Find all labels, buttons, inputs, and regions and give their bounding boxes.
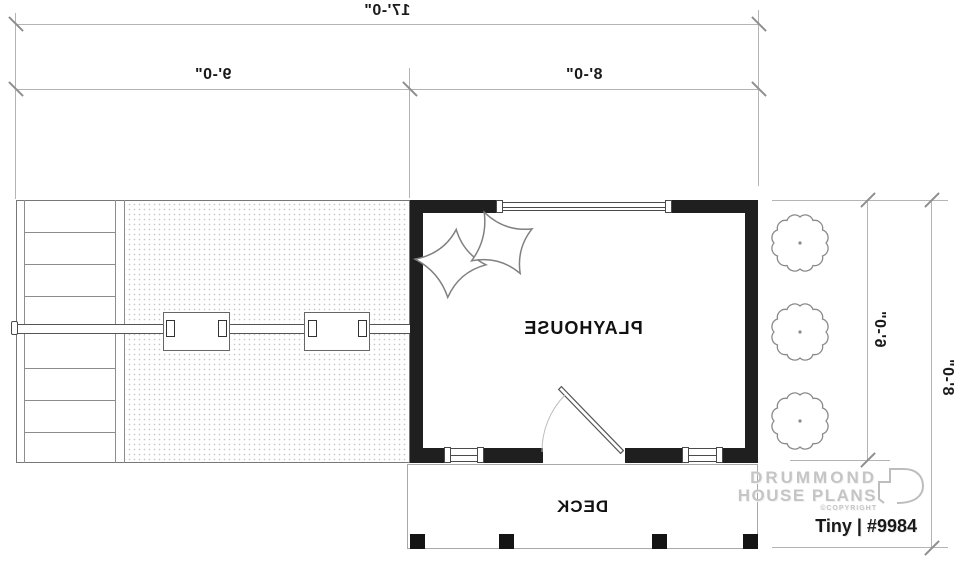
dim-line-total-width: [16, 24, 759, 25]
brand-name-line2: HOUSE PLANS: [738, 486, 877, 506]
ladder-rung: [25, 296, 115, 297]
extension-line-top-depth: [772, 200, 948, 201]
tree-center-dot: [798, 419, 801, 422]
rail-post: [308, 320, 317, 337]
deck-post: [652, 534, 667, 549]
tree-icon: [772, 215, 828, 271]
window-top: [496, 202, 672, 211]
dim-tick: [924, 540, 940, 556]
dim-label-house-depth: 6'-0": [870, 299, 888, 359]
brand-name-line1: DRUMMOND: [750, 468, 877, 488]
window-frame-cap: [477, 447, 484, 463]
wall-bottom-segment: [722, 448, 758, 463]
pillow-icon: [471, 212, 534, 275]
dim-line-split-width: [16, 89, 759, 90]
floor-plan-sheet: 17'-0" 9'-0" 8'-0" 6'-0" 8'-0": [0, 0, 960, 567]
window-frame-cap: [665, 200, 672, 213]
plan-id-label: Tiny | #9984: [815, 516, 917, 537]
dim-line-total-depth: [931, 200, 932, 548]
window-frame-cap: [716, 447, 723, 463]
dim-label-right-width: 8'-0": [524, 66, 644, 84]
deck-post: [410, 534, 425, 549]
wall-right: [410, 200, 423, 463]
extension-line-right: [758, 10, 759, 186]
wall-left: [745, 200, 758, 463]
brand-copyright: ©COPYRIGHT: [820, 505, 877, 512]
extension-line-bottom-depth: [772, 547, 948, 548]
ladder-rung: [25, 432, 115, 433]
ladder-rung: [25, 232, 115, 233]
deck-post: [499, 534, 514, 549]
tree-icon: [772, 393, 828, 449]
window-frame-cap: [682, 447, 689, 463]
pillow-icon: [412, 224, 488, 300]
tree-center-dot: [798, 241, 801, 244]
wall-top-segment: [410, 200, 496, 213]
ladder-rung: [25, 400, 115, 401]
door-leaf: [559, 387, 624, 454]
dim-line-house-depth: [867, 200, 868, 460]
dim-label-total-width: 17'-0": [327, 2, 447, 20]
ladder-rung: [25, 368, 115, 369]
rail-post: [166, 320, 175, 337]
tree-center-dot: [798, 330, 801, 333]
wall-bottom-segment: [484, 448, 543, 463]
wall-bottom-segment: [625, 448, 684, 463]
dim-label-left-width: 9'-0": [153, 66, 273, 84]
rail-post: [218, 320, 227, 337]
tree-icon: [772, 304, 828, 360]
play-rail-end-cap: [11, 321, 18, 335]
window-frame-cap: [444, 447, 451, 463]
rail-post: [358, 320, 367, 337]
room-label-playhouse: PLAYHOUSE: [483, 318, 683, 339]
wall-top-segment: [672, 200, 758, 213]
dim-label-total-depth: 8'-0": [938, 347, 956, 407]
room-label-deck: DECK: [522, 497, 642, 517]
window-frame-cap: [496, 200, 503, 213]
door-swing-arc: [542, 395, 565, 452]
ladder-rung: [25, 264, 115, 265]
deck-post: [743, 534, 758, 549]
extension-line-mid-depth: [790, 460, 890, 461]
extension-line-left: [15, 13, 16, 199]
wall-bottom-segment: [410, 448, 446, 463]
